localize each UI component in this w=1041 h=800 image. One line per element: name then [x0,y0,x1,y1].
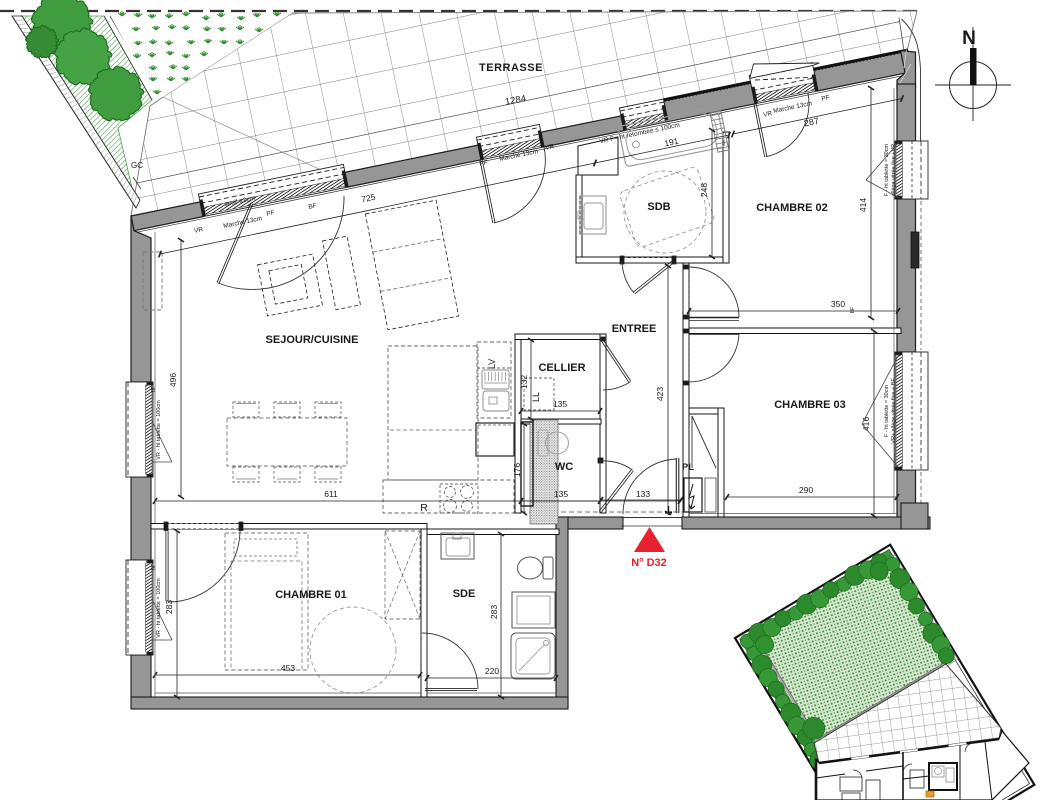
svg-text:135: 135 [554,489,568,499]
svg-text:CHAMBRE 02: CHAMBRE 02 [756,202,828,214]
svg-text:VR - ht tablette = 100cm: VR - ht tablette = 100cm [156,400,162,460]
svg-text:283: 283 [489,605,499,619]
svg-text:F - ht tablette = 30cm: F - ht tablette = 30cm [884,385,890,438]
svg-text:176: 176 [512,463,522,477]
svg-text:BF: BF [151,386,157,392]
svg-text:220: 220 [485,666,499,676]
svg-text:CHAMBRE 03: CHAMBRE 03 [774,399,846,411]
svg-text:CHAMBRE 01: CHAMBRE 01 [275,589,347,601]
svg-text:135: 135 [553,399,567,409]
svg-text:423: 423 [655,387,665,401]
svg-text:LV: LV [487,359,497,369]
svg-text:248: 248 [699,183,709,197]
svg-text:CELLIER: CELLIER [538,362,585,374]
svg-text:133: 133 [636,489,650,499]
svg-text:132: 132 [519,375,529,389]
svg-text:VR - ht tablette = 100cm: VR - ht tablette = 100cm [156,578,162,638]
svg-text:290: 290 [799,485,813,495]
svg-text:N° D32: N° D32 [631,557,667,569]
svg-text:GC: GC [131,161,143,170]
svg-text:416: 416 [861,417,871,431]
svg-text:LL: LL [531,392,541,402]
svg-text:SEJOUR/CUISINE: SEJOUR/CUISINE [266,334,359,346]
svg-text:WC: WC [555,461,573,473]
svg-text:F - ht tablette = 30cm: F - ht tablette = 30cm [884,144,890,197]
svg-text:496: 496 [168,373,178,387]
svg-text:453: 453 [281,663,295,673]
svg-text:SDE: SDE [453,588,476,600]
svg-text:BF: BF [151,564,157,570]
svg-text:ENTREE: ENTREE [612,323,657,335]
svg-text:TERRASSE: TERRASSE [479,62,543,74]
svg-text:BF: BF [850,307,856,313]
svg-text:283: 283 [164,600,174,614]
svg-text:350: 350 [831,299,845,309]
svg-text:SDB: SDB [647,201,670,213]
svg-text:R: R [420,502,428,514]
svg-text:N: N [962,28,976,49]
svg-text:611: 611 [324,489,338,499]
svg-text:PL: PL [682,462,694,473]
svg-text:414: 414 [858,198,868,212]
